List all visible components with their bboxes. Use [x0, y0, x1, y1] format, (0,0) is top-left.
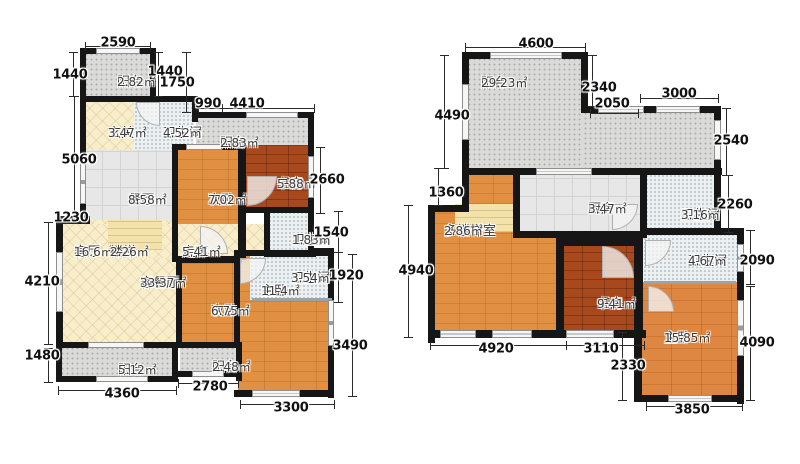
dimension-tick — [44, 344, 53, 345]
wall — [462, 168, 722, 175]
dimension-tick — [465, 43, 466, 52]
dimension-label: 3490 — [333, 339, 368, 354]
dimension-tick — [150, 42, 151, 51]
wall — [172, 144, 178, 262]
dimension-tick — [154, 52, 163, 53]
window — [246, 112, 298, 118]
dimension-tick — [640, 94, 641, 103]
dimension-label: 1540 — [314, 226, 349, 241]
window — [668, 395, 712, 402]
dimension-tick — [176, 386, 177, 395]
dimension-label: 3300 — [274, 401, 309, 416]
dimension-tick — [618, 332, 627, 333]
dimension-line — [590, 113, 638, 114]
room-dining-room — [84, 150, 174, 224]
dimension-label: 2050 — [595, 97, 630, 112]
dimension-tick — [590, 109, 591, 118]
dimension-label: 4360 — [105, 387, 140, 402]
dimension-tick — [58, 386, 59, 395]
dimension-tick — [566, 341, 567, 350]
room-balcony-5 — [467, 57, 583, 170]
room-area: 5.41㎡ — [182, 245, 221, 260]
room-area: 7.02㎡ — [208, 193, 247, 208]
dimension-tick — [638, 109, 639, 118]
dimension-tick — [722, 108, 731, 109]
wall — [176, 342, 238, 348]
room-area: 2.48㎡ — [212, 360, 251, 375]
wall — [513, 172, 520, 238]
dimension-label: 1440 — [53, 68, 88, 83]
window — [252, 390, 300, 397]
dimension-tick — [334, 302, 343, 303]
dimension-tick — [434, 205, 443, 206]
dimension-label: 5060 — [62, 153, 97, 168]
room-area: 3.16㎡ — [681, 208, 720, 223]
dimension-tick — [70, 96, 79, 97]
dimension-tick — [724, 232, 733, 233]
dimension-label: 3110 — [584, 342, 619, 357]
dimension-label: 1480 — [25, 349, 60, 364]
dimension-tick — [316, 213, 325, 214]
dimension-label: 3850 — [675, 403, 710, 418]
window — [492, 330, 532, 338]
dimension-tick — [85, 42, 86, 51]
dimension-label: 4210 — [25, 275, 60, 290]
room-area: 3.54㎡ — [291, 271, 330, 286]
dimension-tick — [404, 205, 413, 206]
dimension-label: 3000 — [662, 87, 697, 102]
dimension-tick — [238, 379, 239, 388]
room-area: 6.75㎡ — [211, 304, 250, 319]
dimension-label: 2590 — [101, 36, 136, 51]
room-area: 4.67㎡ — [688, 254, 727, 269]
dimension-tick — [314, 104, 315, 113]
dimension-tick — [746, 230, 755, 231]
room-area: 8.58㎡ — [128, 193, 167, 208]
room-area: 15.85㎡ — [664, 331, 710, 346]
room-area: 5.12㎡ — [118, 363, 157, 378]
dimension-tick — [644, 341, 645, 350]
wall — [513, 231, 646, 238]
room-area: 16.6㎡ — [74, 245, 113, 260]
dimension-tick — [348, 396, 357, 397]
window — [490, 52, 562, 59]
dimension-label: 990 — [195, 97, 221, 112]
window — [536, 168, 592, 175]
room-area: 3.47㎡ — [588, 202, 627, 217]
wall — [556, 238, 564, 334]
dimension-label: 1920 — [329, 269, 364, 284]
window — [566, 330, 614, 338]
dimension-tick — [588, 55, 597, 56]
window — [88, 342, 144, 348]
dimension-label: 4940 — [399, 264, 434, 279]
dimension-tick — [646, 402, 647, 411]
dimension-tick — [316, 147, 325, 148]
dimension-tick — [182, 52, 191, 53]
dimension-tick — [746, 400, 755, 401]
dimension-label: 2780 — [193, 380, 228, 395]
dimension-label: 1360 — [429, 186, 464, 201]
wall — [556, 238, 642, 246]
window — [440, 330, 476, 338]
floor-plan-canvas: 阳台2.82㎡玄关3.47㎡卫生间4.52㎡阳台2.83㎡餐厅8.58㎡次卧7.… — [0, 0, 800, 464]
dimension-label: 2090 — [740, 254, 775, 269]
dimension-label: 4490 — [435, 109, 470, 124]
room-area: 33.37㎡ — [140, 276, 186, 291]
dimension-tick — [440, 55, 449, 56]
room-area: 2.26㎡ — [110, 245, 149, 260]
wall — [176, 256, 182, 346]
dimension-tick — [69, 52, 78, 53]
dimension-tick — [222, 104, 223, 113]
dimension-label: 1230 — [54, 211, 89, 226]
dimension-tick — [182, 112, 191, 113]
dimension-label: 4090 — [740, 336, 775, 351]
dimension-tick — [718, 94, 719, 103]
window — [186, 144, 222, 150]
dimension-tick — [44, 222, 53, 223]
window — [656, 106, 700, 113]
room-area: 3.47㎡ — [108, 126, 147, 141]
room-bedroom-3 — [180, 260, 236, 344]
dimension-label: 4600 — [519, 37, 554, 52]
divider-line — [644, 281, 736, 284]
room-balcony-5-arm — [583, 111, 716, 170]
dimension-label: 1750 — [160, 76, 195, 91]
dimension-tick — [742, 402, 743, 411]
dimension-tick — [334, 400, 335, 409]
room-area: 29.23㎡ — [481, 76, 527, 91]
room-area: 9.41㎡ — [597, 297, 636, 312]
dimension-tick — [334, 252, 343, 253]
dimension-tick — [430, 341, 431, 350]
room-area: 4.52㎡ — [163, 126, 202, 141]
dimension-tick — [348, 254, 357, 255]
dimension-label: 2540 — [714, 134, 749, 149]
dimension-label: 4410 — [230, 97, 265, 112]
dimension-tick — [240, 400, 241, 409]
room-area: 2.86㎡ — [444, 224, 483, 239]
dimension-label: 2340 — [582, 81, 617, 96]
dimension-tick — [154, 96, 163, 97]
wall — [640, 228, 720, 235]
dimension-tick — [618, 400, 627, 401]
dimension-label: 2330 — [611, 359, 646, 374]
dimension-tick — [434, 168, 443, 169]
dimension-tick — [334, 211, 343, 212]
dimension-tick — [746, 286, 755, 287]
dimension-label: 4920 — [479, 342, 514, 357]
dimension-label: 2660 — [310, 173, 345, 188]
dimension-tick — [404, 337, 413, 338]
wall — [240, 207, 314, 213]
dimension-tick — [585, 43, 586, 52]
room-area: 2.83㎡ — [220, 136, 259, 151]
wall — [634, 235, 643, 335]
dimension-tick — [44, 382, 53, 383]
dimension-tick — [178, 379, 179, 388]
dimension-tick — [724, 175, 733, 176]
dimension-tick — [746, 284, 755, 285]
dimension-label: 2260 — [718, 198, 753, 213]
